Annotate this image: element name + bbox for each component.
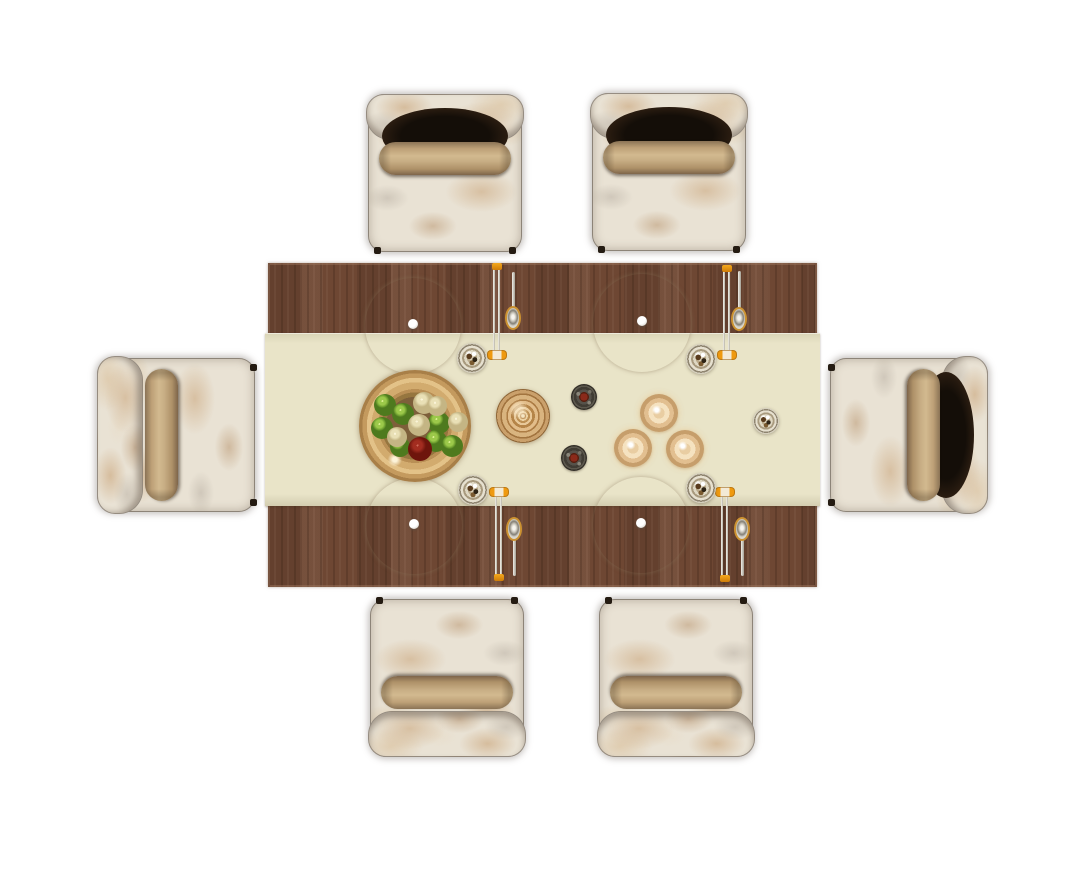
chopstick <box>498 268 500 353</box>
chair-foot <box>509 247 516 254</box>
spoon-bottom-right <box>734 517 750 576</box>
chair-foot <box>376 597 383 604</box>
gold-cup-left <box>614 429 652 467</box>
gold-cup-top <box>640 394 678 432</box>
chair-right <box>830 358 988 512</box>
chopstick-rest <box>489 487 509 497</box>
chopstick <box>495 496 497 576</box>
spoon-bowl <box>731 307 747 331</box>
chair-foot <box>598 246 605 253</box>
chair-foot <box>733 246 740 253</box>
place-setting-top-right <box>593 274 691 372</box>
plate-knob <box>409 519 419 529</box>
chair-foot <box>740 597 747 604</box>
chopstick <box>728 270 730 353</box>
chopstick-cap <box>492 263 502 270</box>
chair-backrest <box>97 356 143 514</box>
spoon-bowl <box>734 517 750 541</box>
spoon-bowl <box>505 306 521 330</box>
chair-foot <box>511 597 518 604</box>
chopstick-cap <box>720 575 730 582</box>
fruit-bowl <box>359 370 471 482</box>
chair-foot <box>374 247 381 254</box>
plate-knob <box>636 518 646 528</box>
condiment-dish-top-left <box>457 343 487 373</box>
chair-left <box>97 358 255 512</box>
fruit-green <box>441 435 463 457</box>
chair-top-left <box>368 94 522 252</box>
chair-cushion <box>379 142 511 175</box>
condiment-dish-bottom-left <box>458 475 488 505</box>
chair-cushion <box>145 369 178 501</box>
chair-bottom-left <box>370 599 524 757</box>
spoon-top-right <box>731 271 747 331</box>
chair-foot <box>828 499 835 506</box>
sauce-bowl-upper <box>571 384 597 410</box>
chopstick <box>500 496 502 576</box>
chopsticks-bottom-right <box>714 487 736 582</box>
chair-foot <box>605 597 612 604</box>
fruit-cream <box>427 396 447 416</box>
chopstick <box>723 270 725 353</box>
chopstick-cap <box>494 574 504 581</box>
tureen <box>496 389 550 443</box>
chopstick-rest <box>717 350 737 360</box>
chair-cushion <box>610 676 742 709</box>
spoon-handle <box>513 537 516 576</box>
chair-foot <box>250 364 257 371</box>
chopstick-rest <box>487 350 507 360</box>
chair-backrest <box>368 711 526 757</box>
condiment-dish-top-right <box>686 344 716 374</box>
sauce-bowl-lower <box>561 445 587 471</box>
fruit-cream <box>387 427 407 447</box>
gold-cup-right <box>666 430 704 468</box>
chair-cushion <box>381 676 513 709</box>
place-setting-top-left <box>365 278 461 374</box>
chair-cushion <box>907 369 940 501</box>
spoon-handle <box>741 537 744 576</box>
plate-knob <box>637 316 647 326</box>
chair-backrest <box>597 711 755 757</box>
fruit-cream <box>448 412 468 432</box>
spoon-handle <box>738 271 741 311</box>
chair-top-right <box>592 93 746 251</box>
plate-knob <box>408 319 418 329</box>
condiment-dish-right <box>753 408 779 434</box>
fruit-red <box>408 437 432 461</box>
spoon-bowl <box>506 517 522 541</box>
chopstick <box>726 496 728 577</box>
dining-set-top-view: Top-down 3D render of a rectangular dini… <box>0 0 1081 886</box>
chair-foot <box>250 499 257 506</box>
place-setting-bottom-left <box>366 478 462 574</box>
chair-bottom-right <box>599 599 753 757</box>
spoon-top-left <box>505 272 521 330</box>
condiment-dish-bottom-right <box>686 473 716 503</box>
chopstick <box>721 496 723 577</box>
chopstick <box>493 268 495 353</box>
chair-cushion <box>603 141 735 174</box>
chair-foot <box>828 364 835 371</box>
fruit-cream <box>408 414 430 436</box>
spoon-bottom-left <box>506 517 522 576</box>
spoon-handle <box>512 272 515 310</box>
place-setting-bottom-right <box>593 477 689 573</box>
chopstick-rest <box>715 487 735 497</box>
